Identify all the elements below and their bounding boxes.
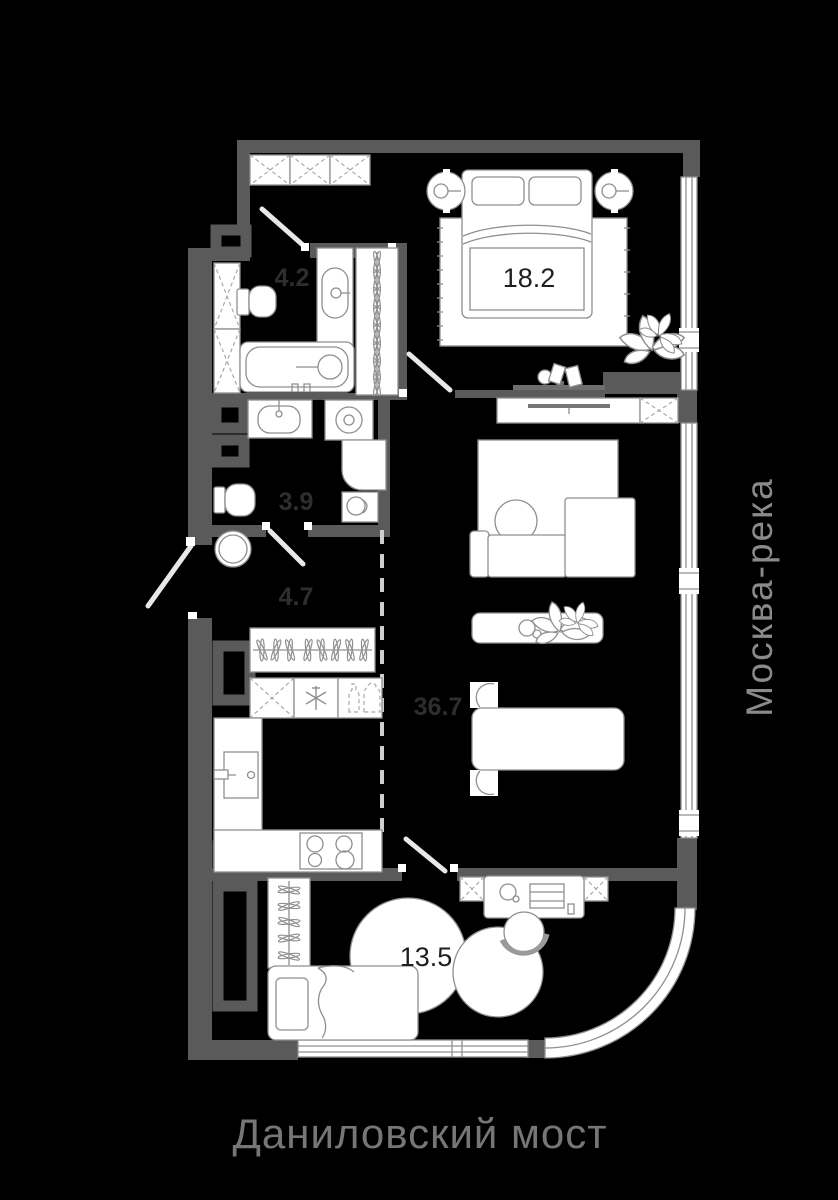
entrance-door bbox=[148, 546, 191, 606]
shaft-niche bbox=[216, 230, 246, 252]
kitchen-counter-sink bbox=[214, 718, 262, 840]
door-bedroom bbox=[409, 354, 450, 390]
wardrobe-hangers bbox=[268, 878, 310, 968]
upper-cabinets bbox=[250, 678, 382, 718]
bathtub-icon bbox=[240, 342, 354, 392]
hallway: 4.7 bbox=[148, 531, 313, 619]
counter-cabinet bbox=[342, 440, 386, 490]
floor-plan: 4.2 bbox=[0, 0, 838, 1200]
sideboard-plant bbox=[472, 595, 605, 643]
living-room: 36.7 bbox=[414, 398, 678, 796]
shaft-niche bbox=[216, 440, 244, 462]
room-label-bathroom-guest: 3.9 bbox=[279, 488, 314, 516]
double-bed-icon bbox=[462, 170, 592, 318]
pouf-icon bbox=[215, 531, 251, 567]
shaft-niche bbox=[218, 886, 252, 1006]
window-east-lower bbox=[679, 423, 699, 838]
door-bathroom-main bbox=[262, 209, 304, 246]
bedroom-small: 13.5 bbox=[268, 876, 608, 1040]
sink-vanity-icon bbox=[248, 400, 312, 438]
bathroom-main: 4.2 bbox=[214, 248, 354, 393]
balcony-glazing-arc bbox=[545, 908, 695, 1058]
shelf-decor-icon bbox=[538, 364, 582, 388]
door-bedroom-small bbox=[406, 839, 445, 871]
desk-icon bbox=[460, 876, 608, 918]
room-label-living: 36.7 bbox=[414, 693, 463, 721]
single-bed-icon bbox=[268, 966, 418, 1040]
toilet-icon bbox=[237, 286, 276, 317]
room-label-bathroom-main: 4.2 bbox=[275, 264, 310, 292]
wardrobe-hangers bbox=[356, 248, 398, 396]
tv-console bbox=[497, 398, 678, 423]
wardrobe-nook bbox=[250, 155, 396, 251]
room-label-bedroom: 18.2 bbox=[503, 263, 556, 293]
coat-rack-hangers bbox=[250, 628, 375, 672]
sink-vanity-icon bbox=[317, 248, 353, 348]
nightstand-lamp-icon bbox=[595, 169, 633, 213]
dining-table-icon bbox=[470, 682, 624, 796]
vent-shaft-icon bbox=[214, 263, 240, 393]
shaft-niche bbox=[218, 646, 250, 700]
washing-machine-icon bbox=[325, 400, 373, 440]
kitchen-counter-stove bbox=[214, 830, 382, 872]
window-south bbox=[298, 1040, 528, 1057]
caption-bridge: Даниловский мост bbox=[232, 1110, 607, 1157]
toilet-icon bbox=[214, 484, 255, 516]
bedroom: 18.2 bbox=[399, 169, 692, 397]
room-label-hallway: 4.7 bbox=[279, 583, 314, 611]
window-east-upper bbox=[679, 177, 699, 390]
kitchen bbox=[214, 628, 458, 872]
wardrobe-cabinets-icon bbox=[250, 155, 370, 185]
floor-plan-drawing: 4.2 bbox=[0, 0, 838, 1200]
shower-drain-icon bbox=[342, 492, 378, 522]
room-label-bedroom-small: 13.5 bbox=[400, 942, 453, 972]
nightstand-lamp-icon bbox=[427, 169, 465, 213]
door-bathroom-guest bbox=[270, 531, 303, 564]
shaft-niche bbox=[216, 402, 244, 428]
caption-river: Москва-река bbox=[739, 477, 780, 716]
